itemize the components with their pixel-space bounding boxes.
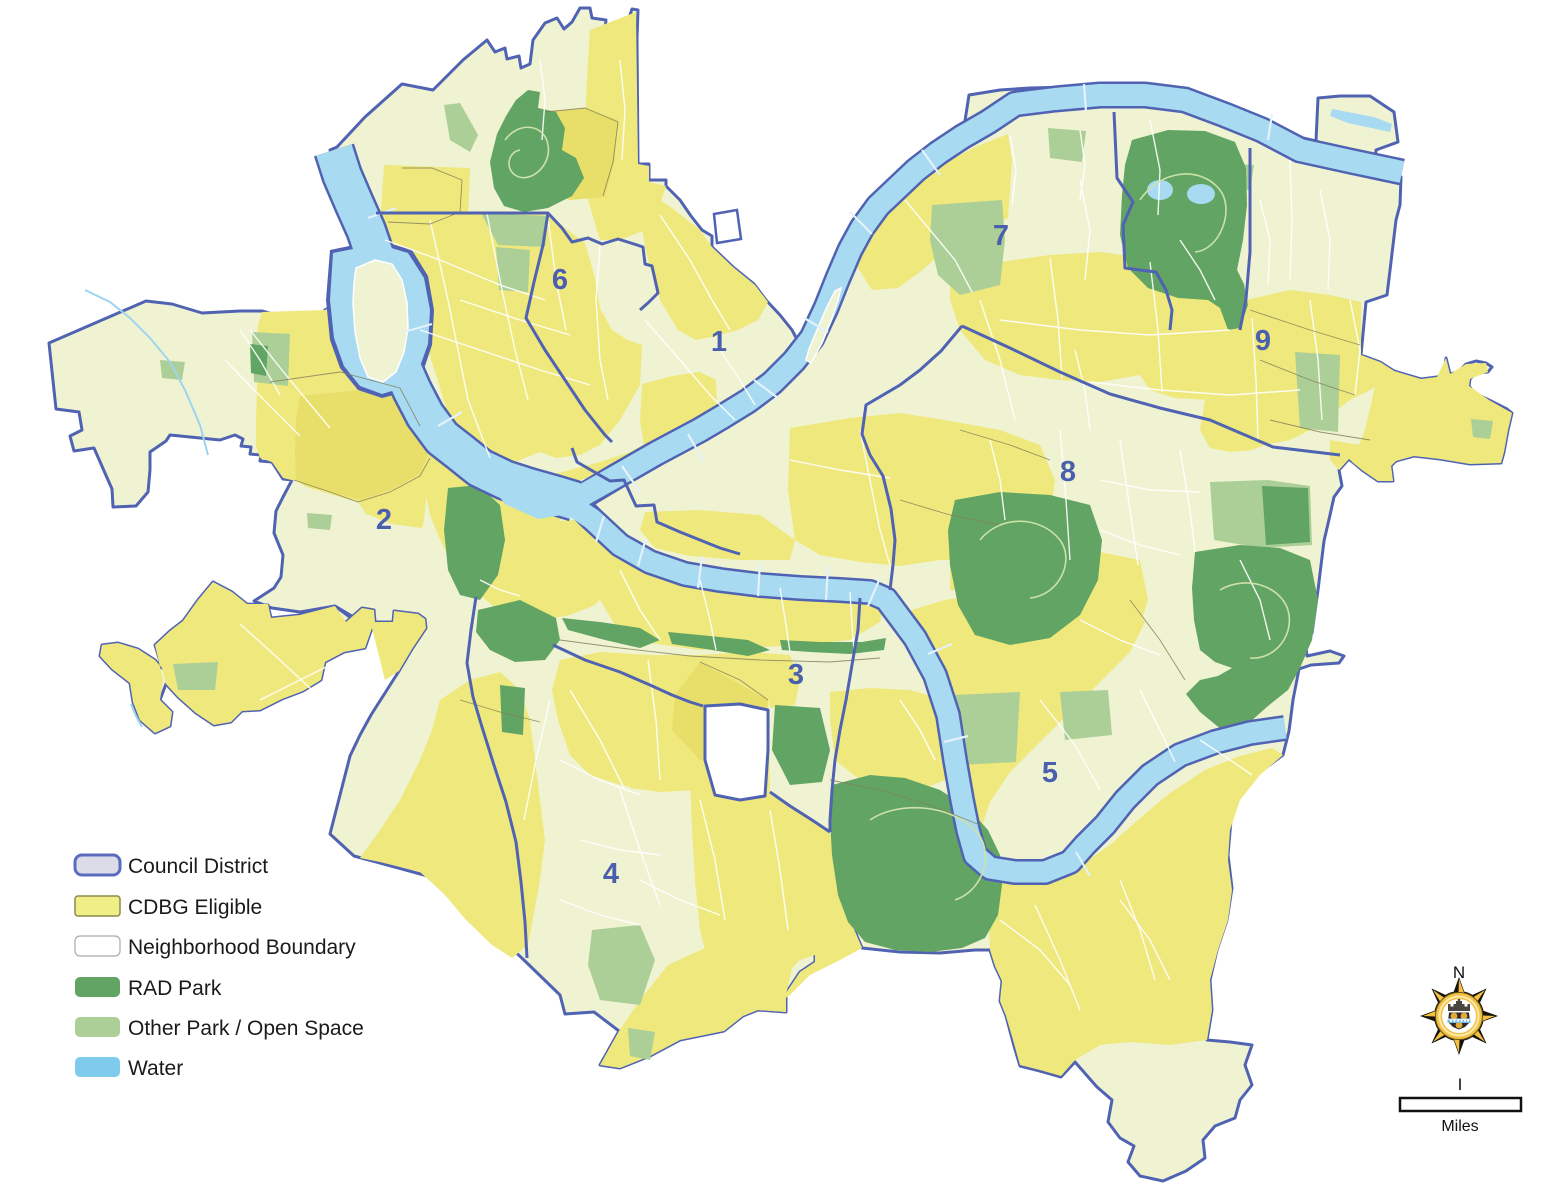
svg-text:I: I — [1458, 1075, 1463, 1094]
svg-text:RAD Park: RAD Park — [128, 977, 222, 1000]
svg-text:6: 6 — [552, 264, 568, 296]
svg-text:Other Park / Open Space: Other Park / Open Space — [128, 1017, 364, 1040]
svg-text:5: 5 — [1042, 757, 1058, 789]
svg-text:Water: Water — [128, 1057, 183, 1080]
svg-text:4: 4 — [603, 858, 619, 890]
svg-text:CDBG Eligible: CDBG Eligible — [128, 896, 262, 919]
svg-text:9: 9 — [1255, 325, 1271, 357]
svg-text:N: N — [1453, 963, 1465, 982]
svg-text:3: 3 — [788, 659, 804, 691]
svg-text:7: 7 — [993, 220, 1009, 252]
svg-text:Council District: Council District — [128, 855, 268, 878]
svg-text:2: 2 — [376, 504, 392, 536]
svg-text:8: 8 — [1060, 456, 1076, 488]
svg-text:1: 1 — [711, 326, 727, 358]
svg-text:Neighborhood Boundary: Neighborhood Boundary — [128, 936, 356, 959]
svg-text:Miles: Miles — [1441, 1118, 1478, 1135]
